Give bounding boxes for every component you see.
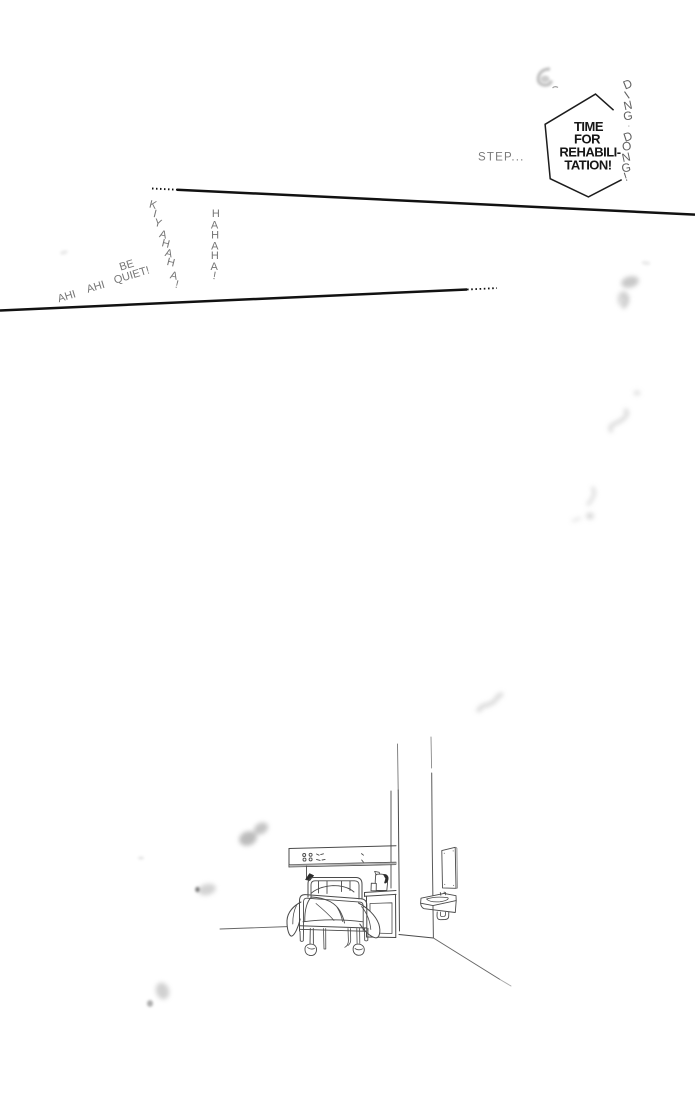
svg-text:H: H xyxy=(212,208,220,220)
svg-text:H: H xyxy=(211,229,219,241)
svg-text:.: . xyxy=(628,120,630,129)
svg-text:TATION!: TATION! xyxy=(564,158,611,173)
svg-text:STEP...: STEP... xyxy=(478,152,525,164)
